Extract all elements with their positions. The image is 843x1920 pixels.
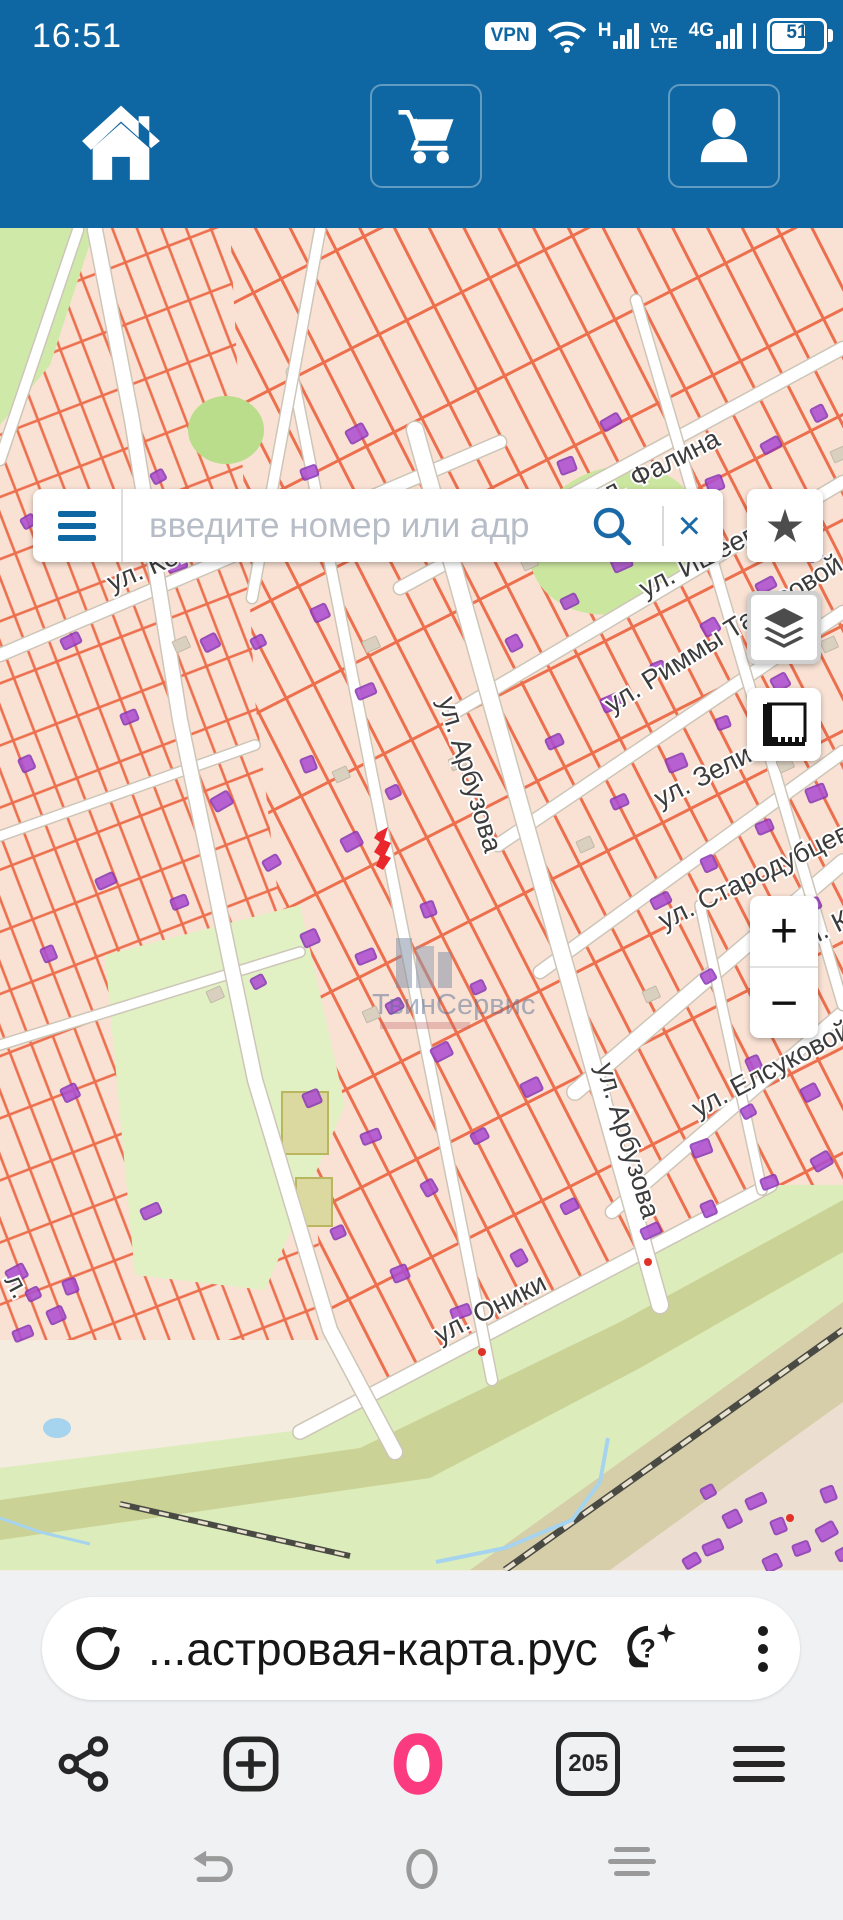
url-text: ...астровая-карта.рус [148, 1622, 598, 1676]
svg-text:ТвинСервис: ТвинСервис [372, 989, 535, 1021]
browser-menu-icon[interactable] [733, 1746, 785, 1782]
home-icon [75, 97, 167, 185]
reload-icon[interactable] [72, 1623, 124, 1675]
clear-search-button[interactable]: × [678, 506, 701, 546]
search-input[interactable]: введите номер или адр [149, 506, 590, 546]
zoom-in-button[interactable]: + [750, 896, 818, 966]
browser-menu-dots-icon[interactable] [756, 1623, 770, 1675]
star-icon: ★ [764, 499, 805, 553]
layers-icon [759, 605, 809, 651]
park-small [188, 396, 264, 464]
yandex-browser-icon[interactable] [392, 1732, 444, 1796]
search-divider [662, 506, 664, 546]
account-button[interactable] [668, 84, 780, 188]
clock: 16:51 [32, 17, 122, 56]
wifi-icon [547, 19, 587, 53]
assistant-help-icon[interactable]: ? [620, 1621, 676, 1677]
zoom-out-button[interactable]: − [750, 968, 818, 1038]
phone-screen: 16:51 VPN H VoLTE 4G [0, 0, 843, 1920]
share-icon[interactable] [58, 1736, 110, 1792]
android-recents-icon[interactable] [608, 1847, 656, 1876]
battery-icon: 51 [767, 18, 827, 54]
measure-button[interactable] [747, 688, 821, 761]
browser-toolbar: 205 [0, 1721, 843, 1807]
favorites-button[interactable]: ★ [747, 489, 823, 562]
search-icon[interactable] [590, 504, 634, 548]
cart-icon [395, 107, 457, 165]
map-red-dot [478, 1348, 486, 1356]
android-navigation-bar [0, 1829, 843, 1920]
address-bar[interactable]: ...астровая-карта.рус ? [42, 1597, 800, 1700]
cart-button[interactable] [370, 84, 482, 188]
menu-button[interactable] [33, 489, 123, 562]
vpn-icon: VPN [485, 22, 536, 50]
map-search-bar: введите номер или адр × [33, 489, 723, 562]
map-red-dot [786, 1514, 794, 1522]
person-icon [695, 107, 753, 165]
cadastral-map[interactable]: ул. Коганаул. Фалинаул. Ишееваул. Риммы … [0, 228, 843, 1571]
ruler-icon [761, 702, 807, 748]
zoom-control: + − [750, 896, 818, 1038]
layers-button[interactable] [747, 591, 821, 664]
browser-chrome: ...астровая-карта.рус ? [0, 1571, 843, 1920]
app-header: 16:51 VPN H VoLTE 4G [0, 0, 843, 228]
status-bar: 16:51 VPN H VoLTE 4G [0, 0, 843, 72]
android-back-icon[interactable] [190, 1847, 236, 1891]
signal-h-icon: H [598, 23, 640, 49]
signal-4g-icon: 4G [689, 23, 742, 49]
home-button[interactable] [66, 86, 176, 196]
map-red-dot [644, 1258, 652, 1266]
volte-icon: VoLTE [650, 21, 677, 51]
tab-count: 205 [568, 1750, 608, 1778]
android-home-icon[interactable] [404, 1847, 440, 1891]
svg-text:?: ? [639, 1633, 655, 1663]
map-canvas[interactable]: ул. Коганаул. Фалинаул. Ишееваул. Риммы … [0, 228, 843, 1571]
status-separator [753, 23, 756, 49]
pond [43, 1418, 71, 1438]
tab-counter-button[interactable]: 205 [556, 1732, 620, 1796]
new-tab-icon[interactable] [223, 1736, 279, 1792]
